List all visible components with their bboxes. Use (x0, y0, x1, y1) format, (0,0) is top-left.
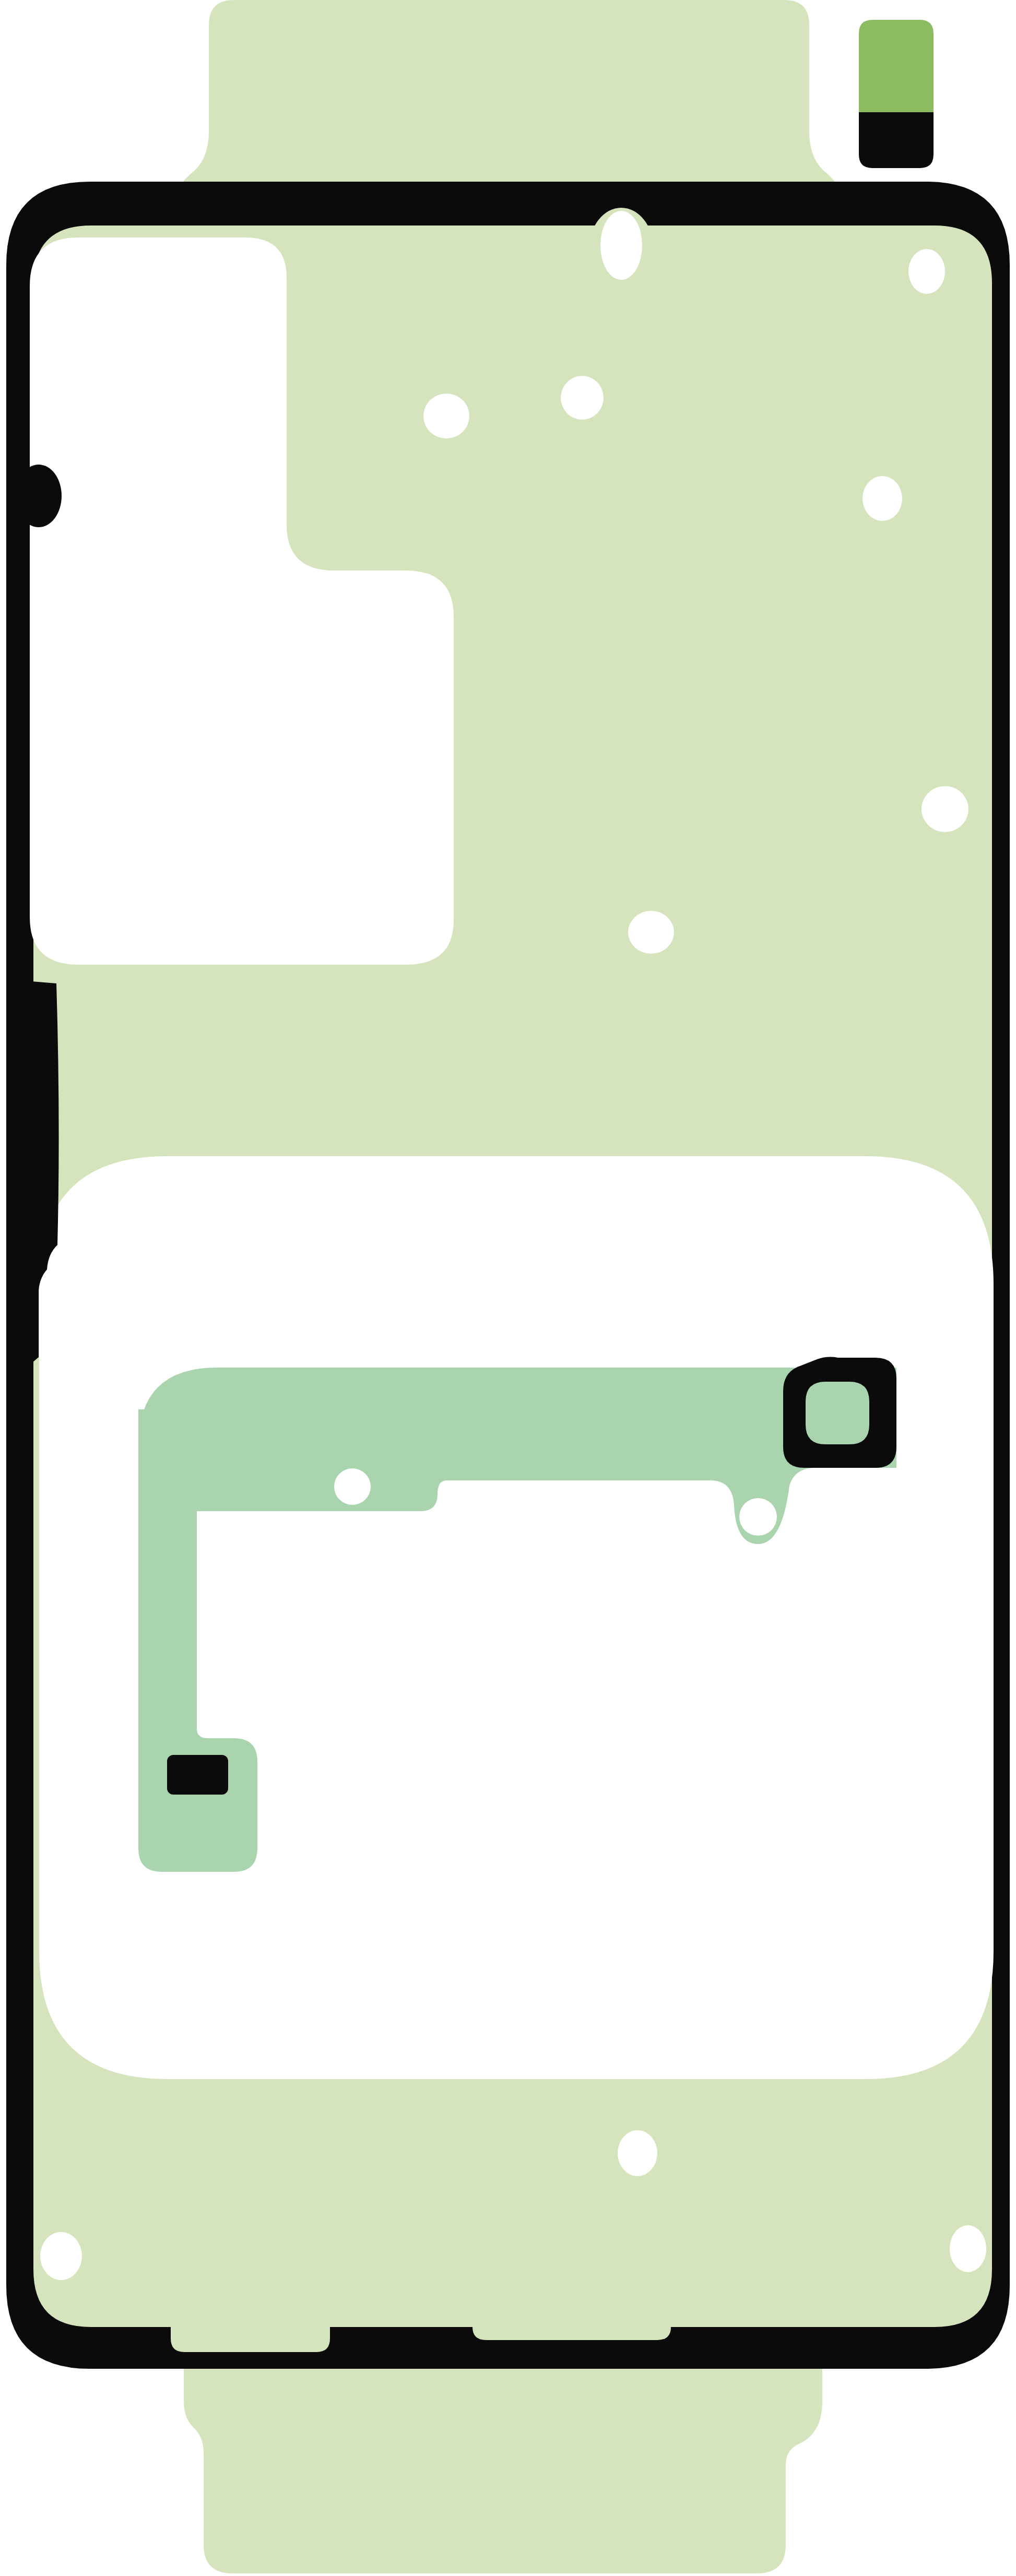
adhesive-sheet-figure (0, 0, 1016, 2576)
alignment-hole (950, 2225, 986, 2272)
alignment-hole (561, 376, 604, 420)
strip-hole (334, 1468, 371, 1505)
strip-connector-pad (167, 1755, 228, 1795)
strip-hole (739, 1498, 777, 1536)
pull-tab-black-half (859, 112, 934, 168)
alignment-hole (600, 211, 642, 280)
alignment-hole (40, 2232, 82, 2280)
pull-tab-olive-half (859, 20, 934, 112)
bottom-edge-tongue-right (472, 2312, 671, 2340)
bottom-edge-tongue-left (171, 2312, 330, 2352)
pull-tab-bottom (184, 2362, 822, 2573)
pull-tab-top (184, 0, 834, 191)
pull-tab-top-right (859, 20, 934, 168)
alignment-hole (908, 249, 945, 294)
alignment-hole (863, 476, 902, 521)
left-border-bump (16, 465, 62, 527)
alignment-hole (922, 786, 968, 832)
alignment-hole (423, 394, 469, 438)
adhesive-sheet-svg (0, 0, 1016, 2576)
alignment-hole (618, 2130, 657, 2176)
alignment-hole (628, 911, 674, 954)
